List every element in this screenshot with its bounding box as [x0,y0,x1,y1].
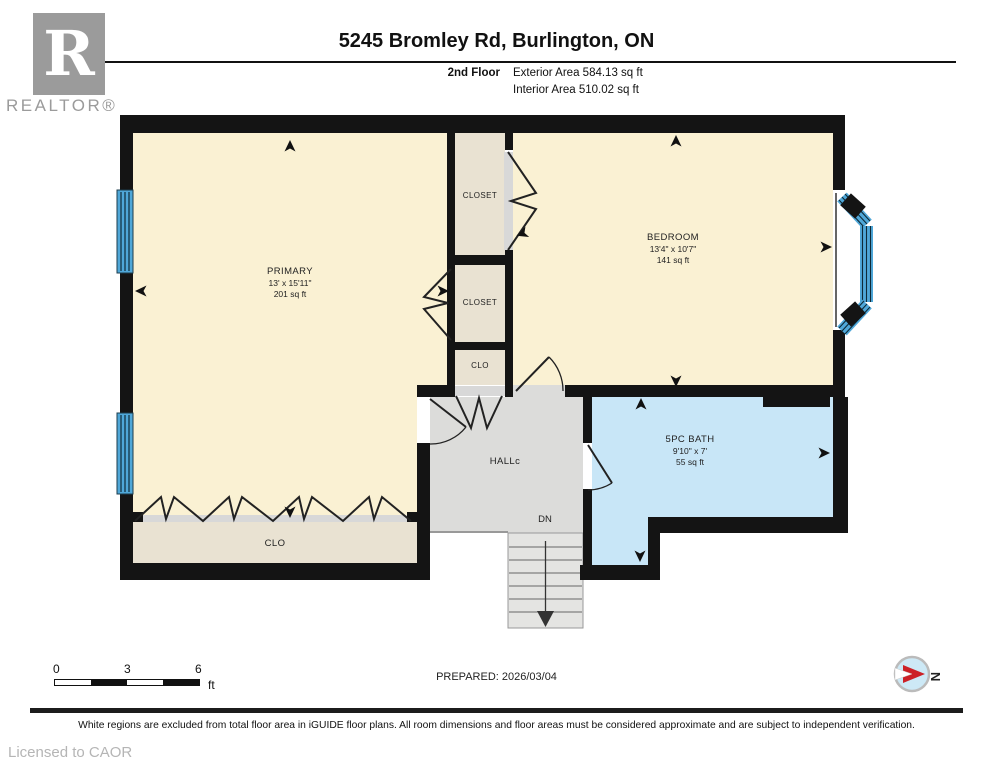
label-clo-mid: CLO [440,361,520,371]
realtor-logo-text: REALTOR® [6,96,136,116]
title-underline [100,61,956,63]
page-title: 5245 Bromley Rd, Burlington, ON [0,30,993,53]
label-primary: PRIMARY 13' x 15'11" 201 sq ft [200,266,380,300]
compass-north-letter: N [928,672,943,681]
compass-icon: N [890,652,952,698]
label-stairs-dn: DN [515,514,575,526]
bay-window [836,193,871,334]
label-hall: HALLc [445,456,565,468]
footer-divider [30,708,963,713]
floorplan-drawing [0,0,993,768]
room-primary [133,133,447,518]
room-bath [592,397,833,565]
staircase [430,532,583,628]
label-closet-lower: CLOSET [440,298,520,308]
clo-mid-door-track [455,386,505,396]
window-left-lower [117,413,133,494]
licensed-text: Licensed to CAOR [8,744,132,761]
prepared-date: PREPARED: 2026/03/04 [0,671,993,683]
label-bedroom: BEDROOM 13'4" x 10'7" 141 sq ft [583,232,763,266]
disclaimer-text: White regions are excluded from total fl… [0,720,993,731]
label-closet-upper: CLOSET [440,191,520,201]
realtor-logo-letter: R [43,23,95,85]
window-left-upper [117,190,133,273]
realtor-logo: R [33,13,105,95]
floorplan-page: R REALTOR® 5245 Bromley Rd, Burlington, … [0,0,993,768]
label-bath: 5PC BATH 9'10" x 7' 55 sq ft [600,434,780,468]
label-clo-bottom: CLO [195,538,355,550]
